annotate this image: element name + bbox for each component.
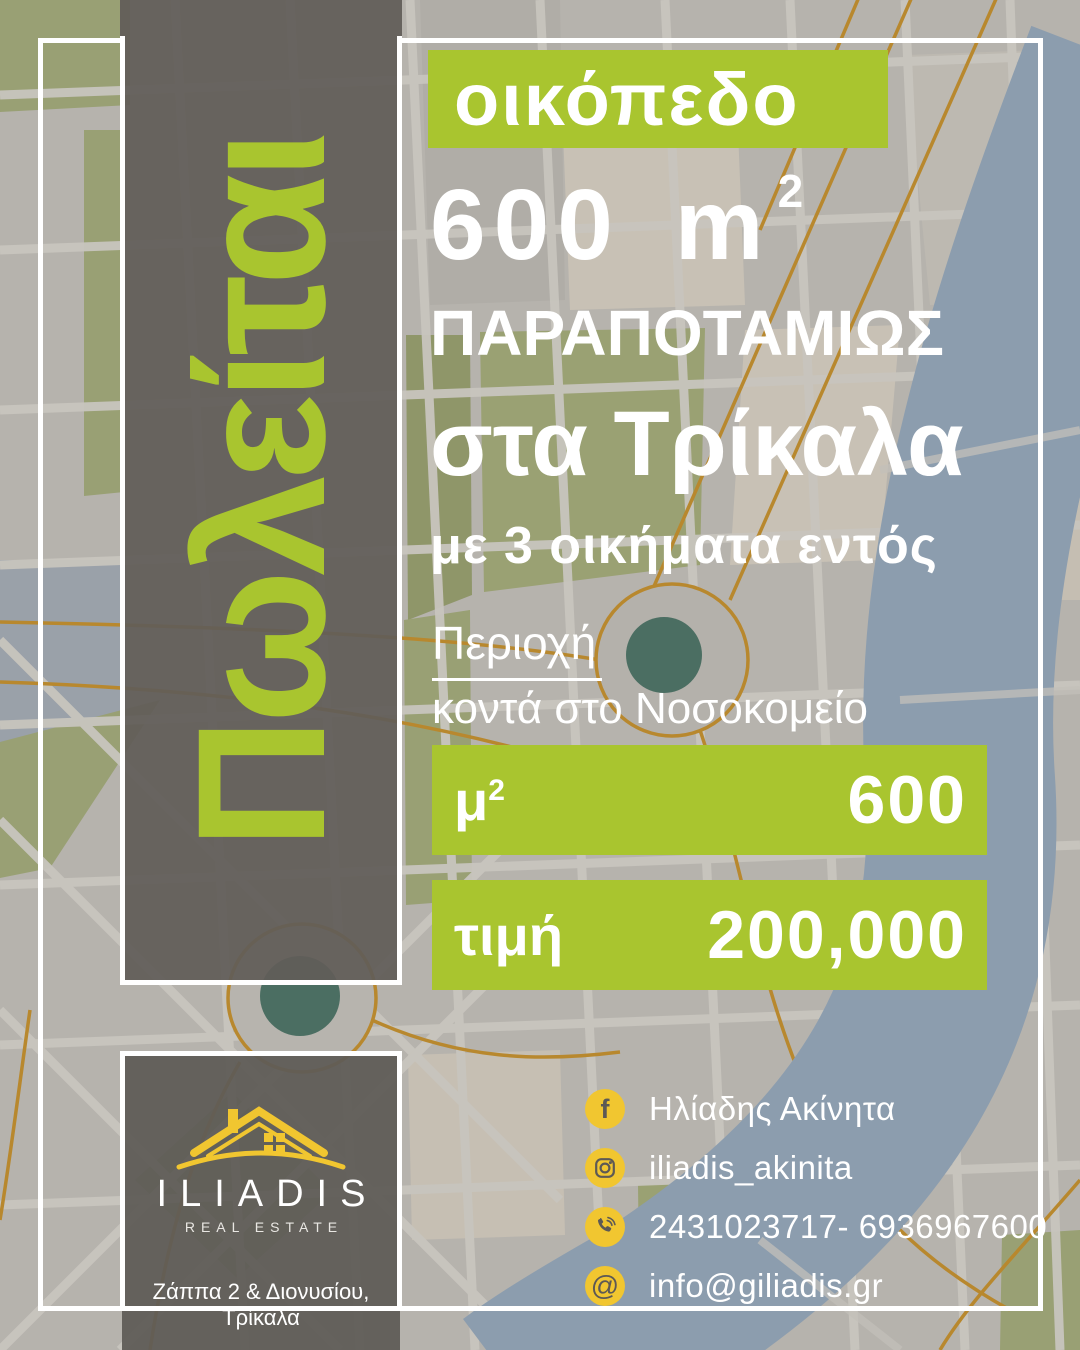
headline-buildings-note: με 3 οικήματα εντός [430,516,938,576]
spec-bar-price: τιμή 200,000 [432,880,987,990]
spec-price-value: 200,000 [707,896,967,974]
headline-location-riverside: ΠΑΡΑΠΟΤΑΜΙΩΣ [430,296,944,370]
logo-box: ILIADIS REAL ESTATE Ζάππα 2 & Διονυσίου,… [120,1051,402,1350]
area-label: Περιοχή [432,616,602,681]
size-heading: 600 m2 [430,168,797,283]
for-sale-vertical-text: Πωλείται [120,0,402,985]
house-icon [176,1103,346,1171]
facebook-name: Ηλίαδης Ακίνητα [649,1090,896,1128]
contact-row-phone: 2431023717- 6936967600 [585,1207,1047,1247]
spec-size-label: μ2 [454,768,505,833]
poster-root: Πωλείται οικόπεδο 600 m2 ΠΑΡΑΠΟΤΑΜΙΩΣ στ… [0,0,1080,1350]
size-exponent: 2 [778,165,804,217]
facebook-icon: f [585,1089,625,1129]
contacts-list: f Ηλίαδης Ακίνητα iliadis_akinita [585,1089,1047,1306]
frame-left [38,38,43,1311]
logo-name: ILIADIS [120,1173,402,1216]
instagram-handle: iliadis_akinita [649,1149,853,1187]
email-icon: @ [585,1266,625,1306]
contact-row-email: @ info@giliadis.gr [585,1266,1047,1306]
logo-address: Ζάππα 2 & Διονυσίου, Τρίκαλα [120,1279,402,1331]
phone-numbers: 2431023717- 6936967600 [649,1208,1047,1246]
spec-bar-size: μ2 600 [432,745,987,855]
phone-icon [585,1207,625,1247]
spec-price-label: τιμή [454,903,563,968]
logo-subtitle: REAL ESTATE [120,1219,402,1235]
area-value: κοντά στο Νοσοκομείο [432,684,868,734]
property-tag-label: οικόπεδο [454,57,800,142]
frame-top-right-segment [402,38,1043,43]
property-tag-box: οικόπεδο [428,50,888,148]
headline-city: στα Τρίκαλα [430,392,964,497]
frame-top-left-segment [38,38,120,43]
contact-row-facebook: f Ηλίαδης Ακίνητα [585,1089,1047,1129]
email-address: info@giliadis.gr [649,1267,883,1305]
instagram-icon [585,1148,625,1188]
size-number: 600 [430,169,621,281]
contact-row-instagram: iliadis_akinita [585,1148,1047,1188]
spec-size-value: 600 [848,761,967,839]
size-unit: m [675,169,772,281]
